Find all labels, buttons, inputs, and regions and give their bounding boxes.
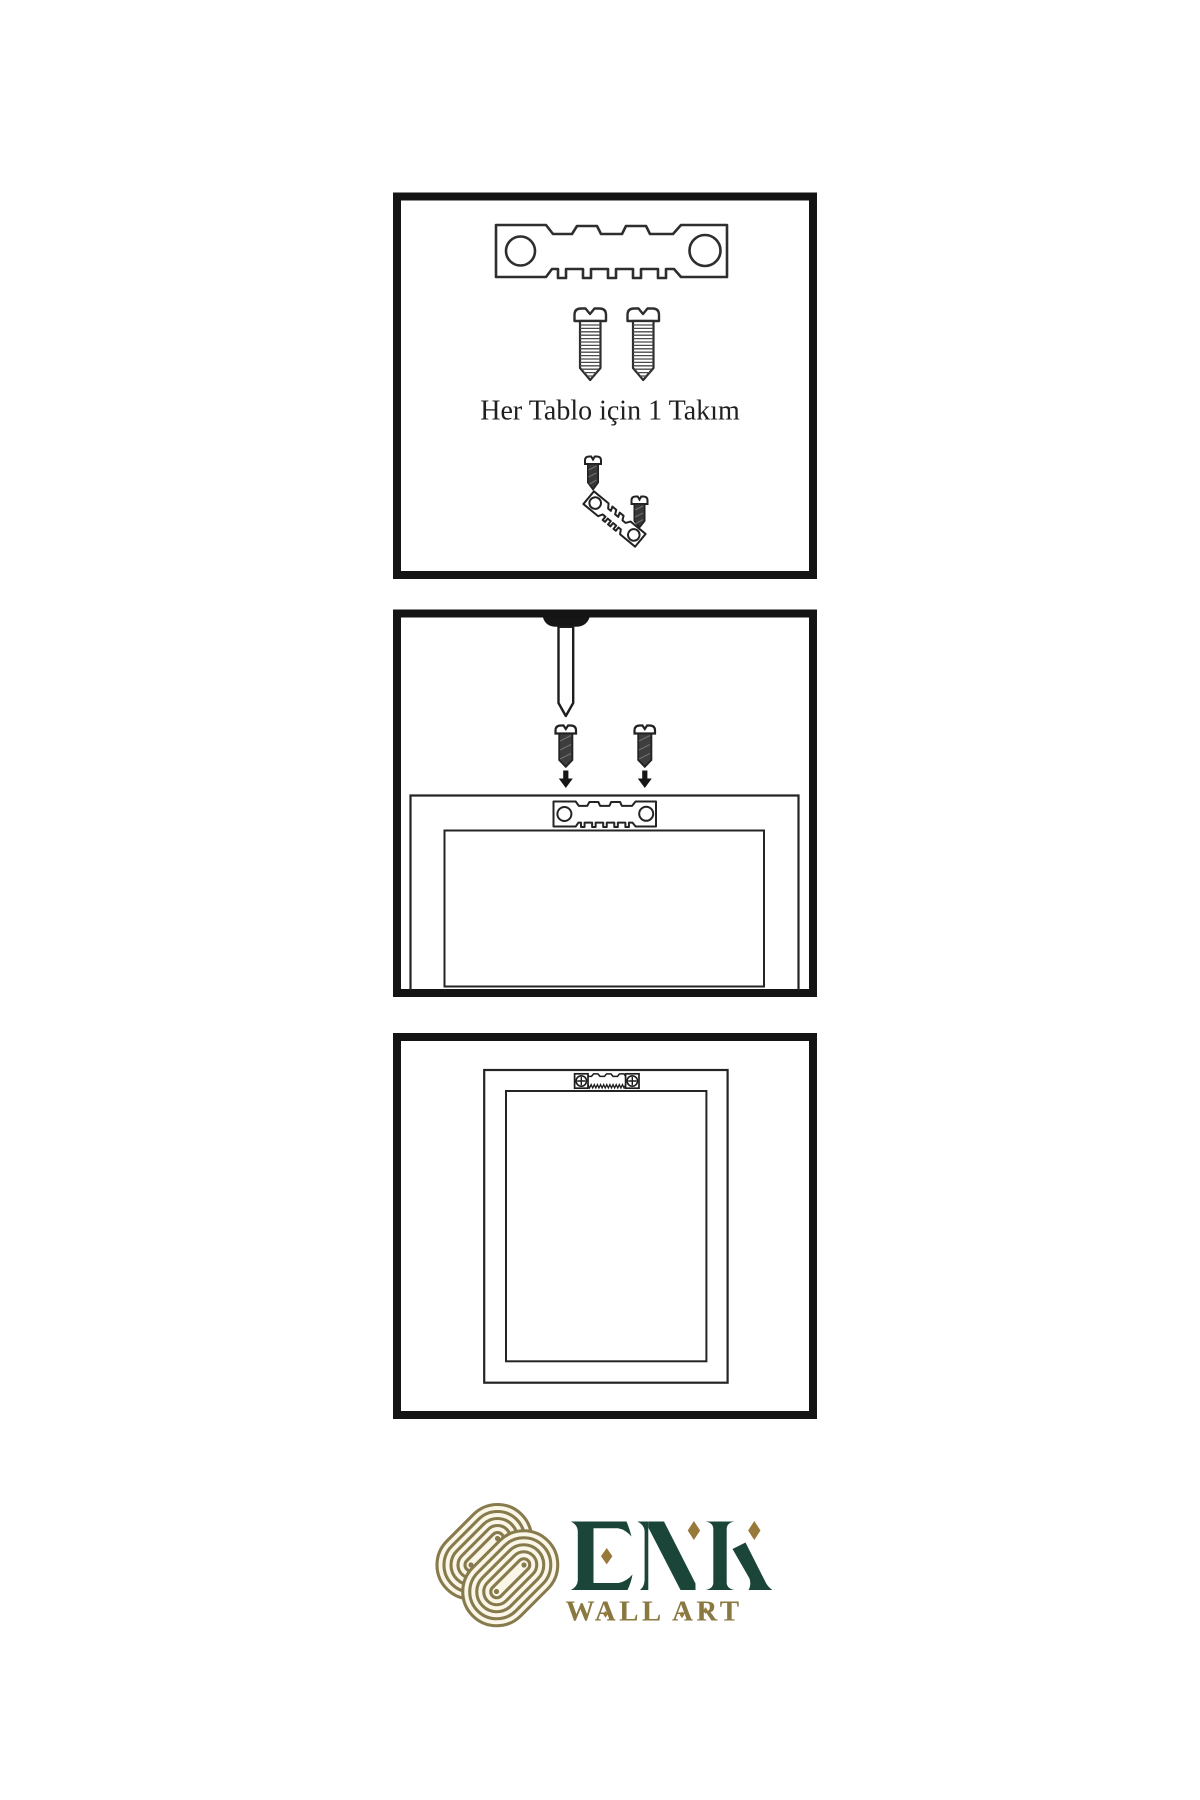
svg-text:WALL ART: WALL ART bbox=[566, 1596, 743, 1628]
svg-text:Her Tablo için 1 Takım: Her Tablo için 1 Takım bbox=[480, 396, 740, 427]
